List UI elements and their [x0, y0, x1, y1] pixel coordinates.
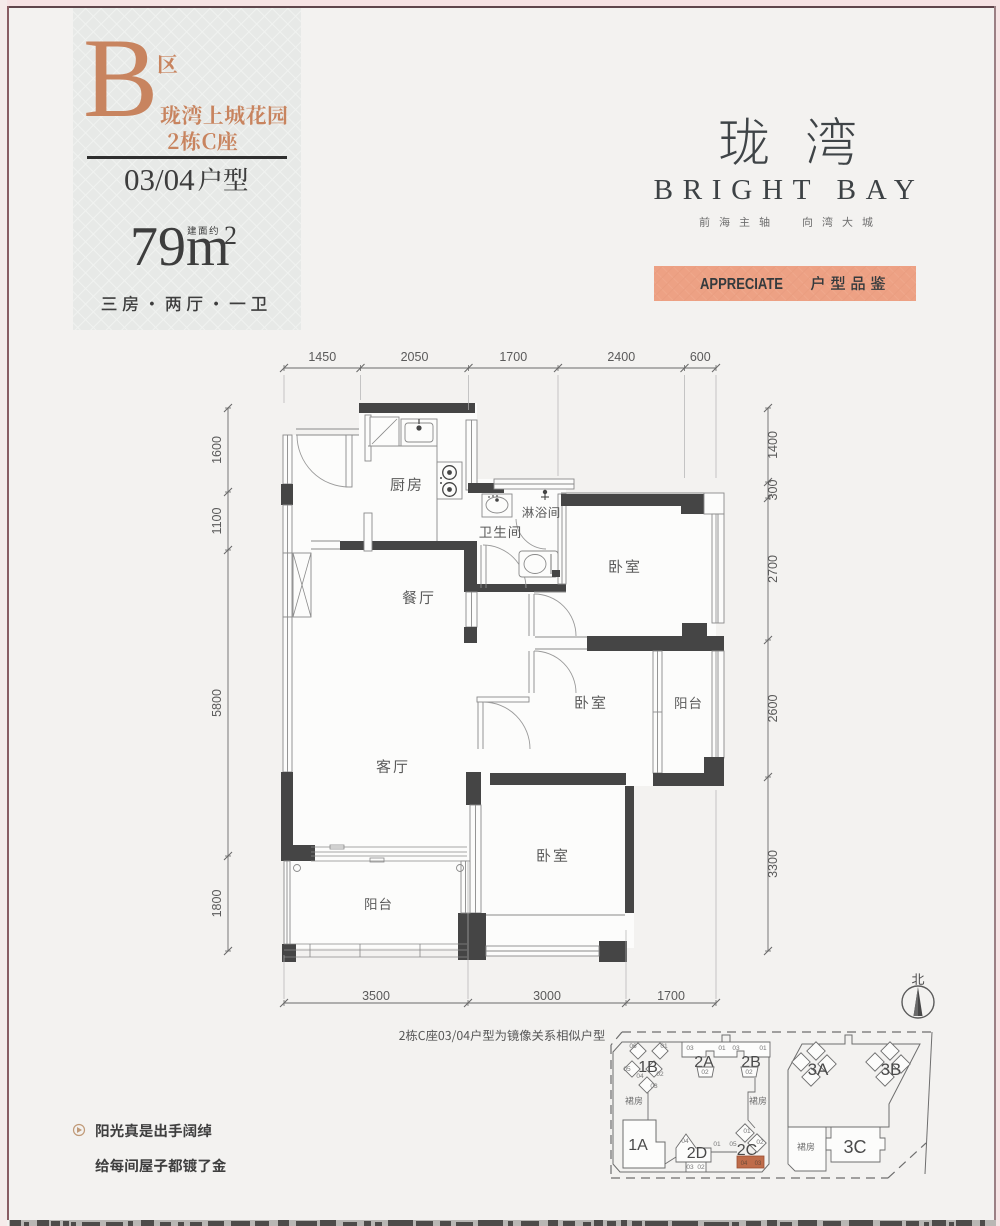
svg-text:02: 02	[656, 1071, 664, 1078]
svg-text:02: 02	[697, 1164, 705, 1171]
svg-text:02: 02	[745, 1069, 753, 1076]
svg-text:600: 600	[690, 350, 711, 364]
svg-text:04: 04	[636, 1073, 644, 1080]
svg-text:03: 03	[686, 1164, 694, 1171]
svg-text:04: 04	[681, 1138, 689, 1145]
svg-text:3500: 3500	[362, 989, 390, 1003]
svg-text:1600: 1600	[210, 436, 224, 464]
svg-text:1700: 1700	[499, 350, 527, 364]
svg-text:1400: 1400	[766, 431, 780, 459]
svg-text:BRIGHT BAY: BRIGHT BAY	[654, 174, 925, 206]
svg-text:01: 01	[713, 1141, 721, 1148]
svg-text:2050: 2050	[401, 350, 429, 364]
svg-text:2600: 2600	[766, 695, 780, 723]
svg-text:3000: 3000	[533, 989, 561, 1003]
svg-text:3C: 3C	[843, 1137, 866, 1157]
svg-text:01: 01	[759, 1045, 767, 1052]
svg-text:01: 01	[718, 1045, 726, 1052]
svg-text:B: B	[83, 16, 158, 141]
svg-text:2700: 2700	[766, 555, 780, 583]
svg-text:2400: 2400	[607, 350, 635, 364]
svg-text:79m: 79m	[130, 216, 230, 278]
svg-text:300: 300	[766, 480, 780, 501]
svg-text:2: 2	[224, 221, 237, 250]
svg-text:1A: 1A	[628, 1137, 648, 1154]
svg-text:04: 04	[741, 1161, 748, 1167]
svg-text:3A: 3A	[808, 1060, 829, 1079]
svg-text:01: 01	[743, 1128, 751, 1135]
svg-text:03/04: 03/04	[124, 162, 195, 197]
svg-text:3B: 3B	[881, 1060, 902, 1079]
svg-text:1700: 1700	[657, 989, 685, 1003]
svg-text:02: 02	[756, 1139, 764, 1146]
svg-text:06: 06	[629, 1043, 637, 1050]
svg-text:02: 02	[701, 1069, 709, 1076]
svg-text:03: 03	[686, 1045, 694, 1052]
svg-text:1800: 1800	[210, 890, 224, 918]
svg-text:1100: 1100	[210, 508, 224, 535]
svg-text:05: 05	[623, 1066, 631, 1073]
svg-text:01: 01	[660, 1043, 668, 1050]
svg-text:2D: 2D	[687, 1145, 707, 1162]
svg-text:03: 03	[732, 1045, 740, 1052]
svg-text:03: 03	[650, 1083, 658, 1090]
svg-text:1450: 1450	[308, 350, 336, 364]
svg-text:5800: 5800	[210, 689, 224, 717]
svg-text:3300: 3300	[766, 850, 780, 878]
svg-text:APPRECIATE: APPRECIATE	[700, 276, 783, 293]
svg-text:03: 03	[755, 1161, 762, 1167]
